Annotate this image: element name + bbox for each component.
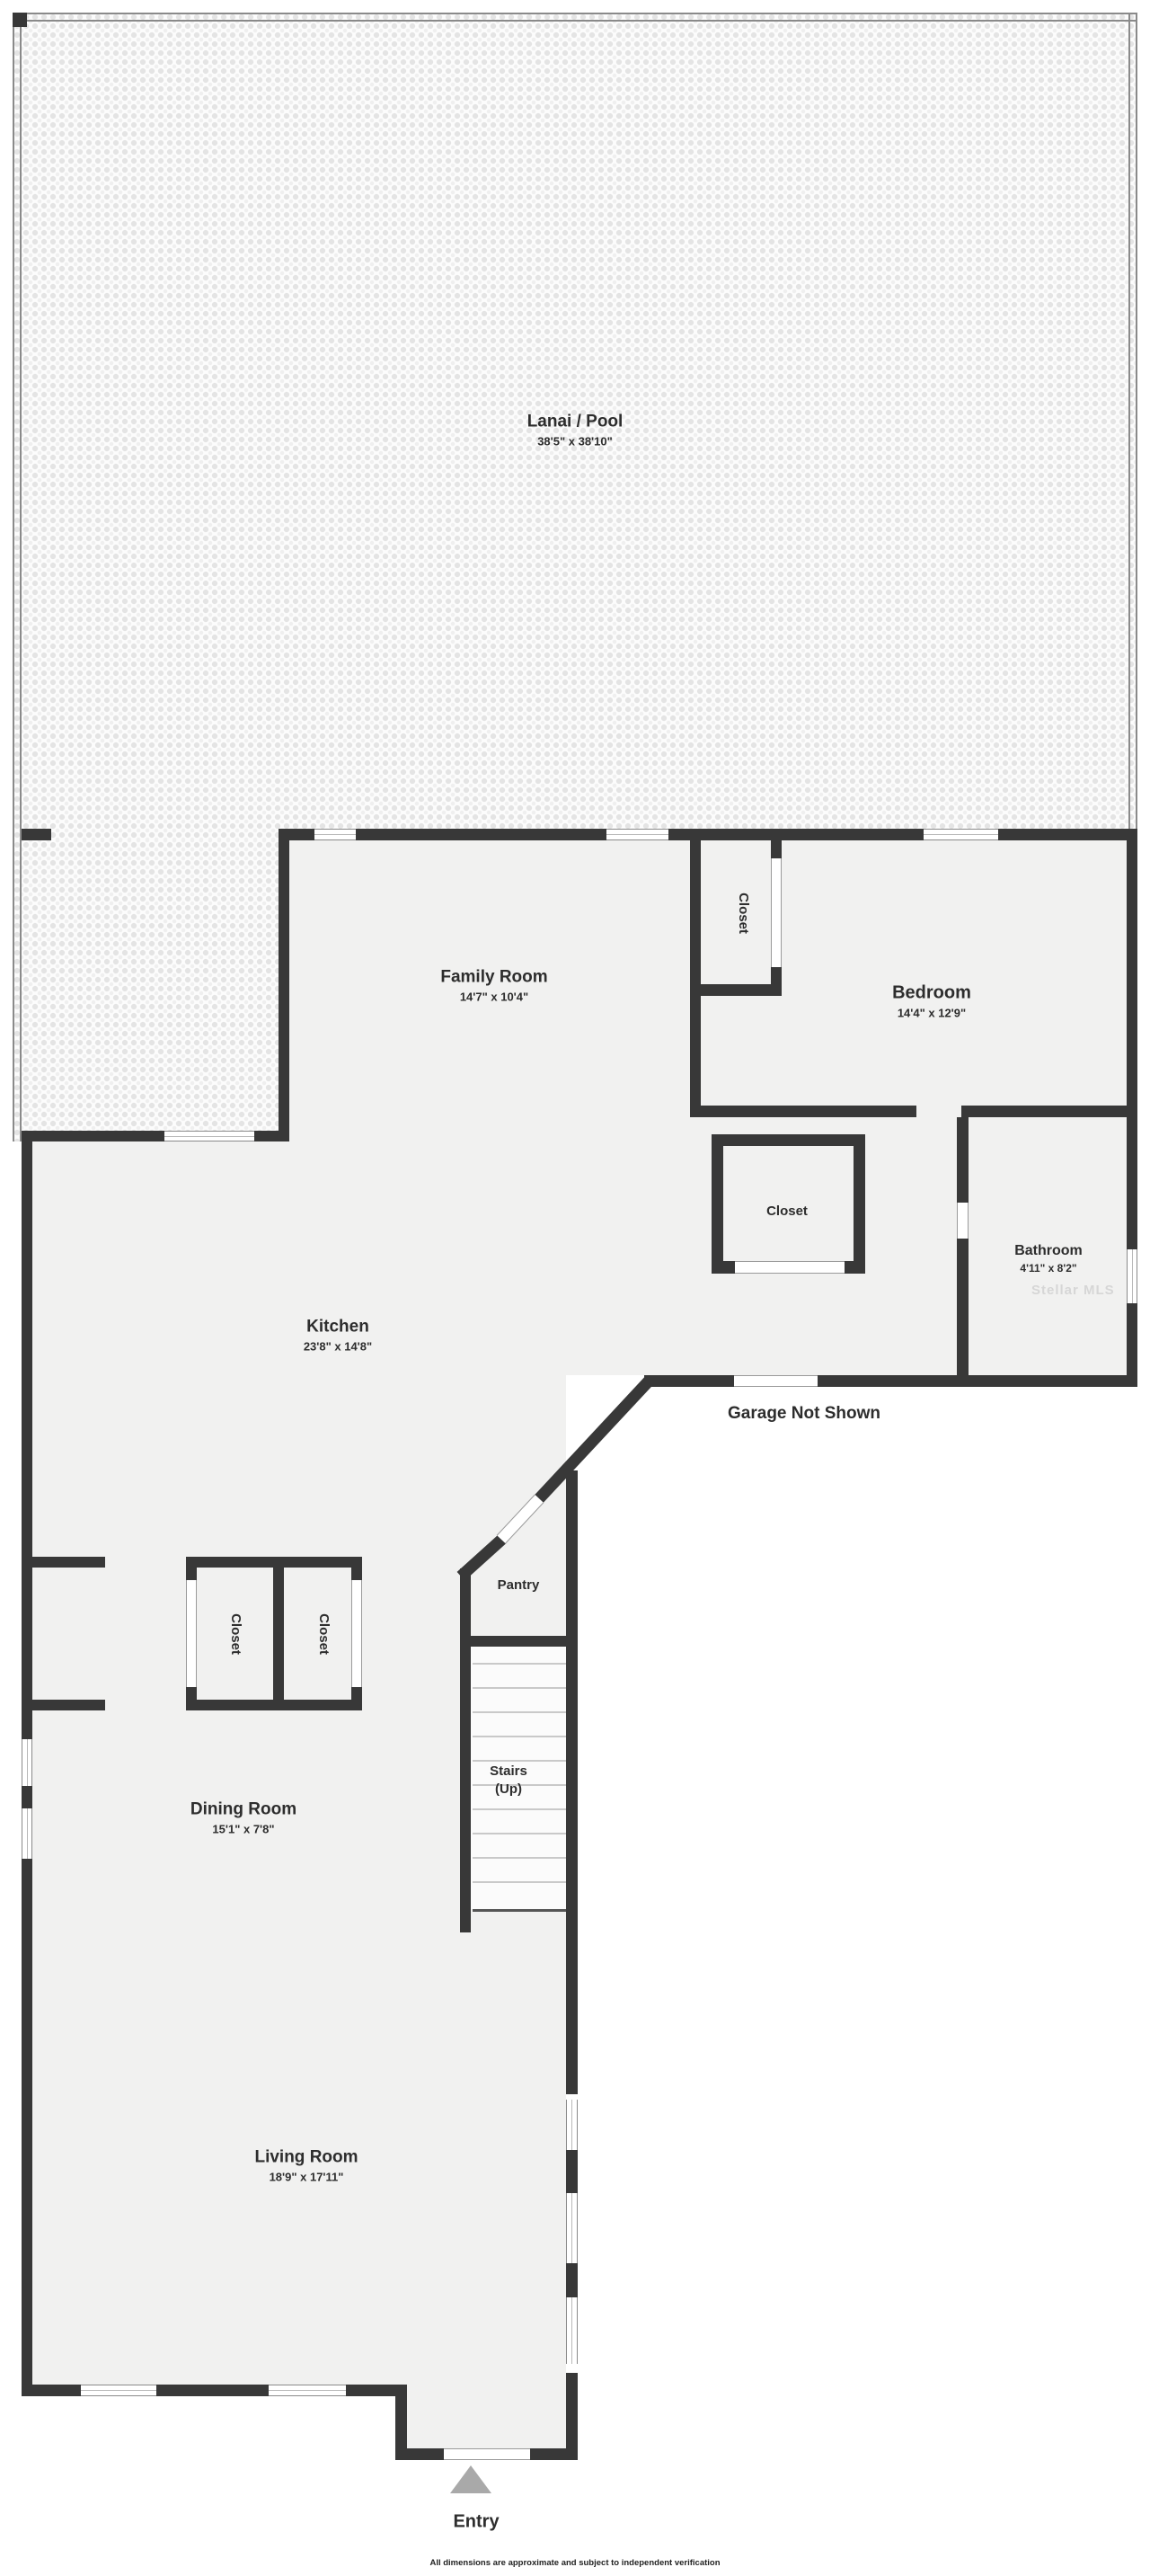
stair-step bbox=[473, 1711, 566, 1713]
stair-step bbox=[473, 1736, 566, 1737]
door-bathroom bbox=[957, 1203, 969, 1239]
wall-right-living-1 bbox=[566, 2150, 578, 2193]
watermark: Stellar MLS bbox=[1031, 1283, 1115, 1298]
entry-arrow-icon bbox=[450, 2465, 491, 2493]
window-lanai-bottom bbox=[164, 1131, 254, 1141]
wall-hall-closet-right bbox=[854, 1146, 865, 1274]
kitchen-label: Kitchen 23'8" x 14'8" bbox=[304, 1315, 372, 1354]
wall-hall-closet-left bbox=[712, 1146, 723, 1274]
stairs-name: Stairs bbox=[490, 1763, 527, 1781]
door-hall-closet bbox=[735, 1261, 845, 1274]
door-garage bbox=[734, 1375, 818, 1387]
pantry-label: Pantry bbox=[498, 1577, 540, 1594]
stair-step bbox=[473, 1833, 566, 1834]
stair-step bbox=[473, 1663, 566, 1665]
opening-bedroom bbox=[916, 1106, 961, 1117]
kitchen-dims: 23'8" x 14'8" bbox=[304, 1338, 372, 1355]
disclaimer-text: All dimensions are approximate and subje… bbox=[0, 2558, 1150, 2568]
stairs-direction: (Up) bbox=[490, 1781, 527, 1799]
window-bedroom-top bbox=[924, 829, 998, 840]
dining-closet-left-label: Closet bbox=[226, 1613, 244, 1655]
door-dining-closet-left bbox=[186, 1580, 197, 1687]
entry-name: Entry bbox=[453, 2510, 499, 2535]
living-room-dims: 18'9" x 17'11" bbox=[254, 2169, 358, 2185]
floor-plan: Lanai / Pool 38'5" x 38'10" Family Room … bbox=[0, 0, 1150, 2576]
wall-hall-closet-bottom-right bbox=[845, 1261, 865, 1274]
wall-right-living-3 bbox=[566, 2373, 578, 2460]
floor-family-kitchen-bridge bbox=[289, 1117, 566, 1141]
wall-bedroom-closet-bottom bbox=[690, 984, 782, 996]
floor-entry-alcove bbox=[400, 2385, 569, 2448]
garage-note-label: Garage Not Shown bbox=[728, 1402, 880, 1426]
stair-step-edge bbox=[473, 1909, 566, 1912]
wall-top-left-stub bbox=[22, 829, 51, 840]
living-room-label: Living Room 18'9" x 17'11" bbox=[254, 2145, 358, 2184]
window-living-right-1 bbox=[566, 2100, 578, 2150]
hall-closet-name: Closet bbox=[766, 1203, 808, 1221]
wall-bedroom-closet-right-top bbox=[771, 840, 782, 858]
wall-closet-cap-br bbox=[351, 1687, 362, 1700]
dining-closet-left-name: Closet bbox=[226, 1613, 244, 1655]
kitchen-name: Kitchen bbox=[304, 1315, 372, 1338]
wall-family-bedroom-top bbox=[279, 829, 1137, 840]
window-living-bottom-2 bbox=[269, 2385, 346, 2396]
dining-closet-right-name: Closet bbox=[314, 1613, 332, 1655]
stair-step bbox=[473, 1881, 566, 1883]
wall-closet-cap-tr bbox=[351, 1568, 362, 1580]
wall-bathroom-divider-bottom bbox=[957, 1239, 969, 1375]
lanai-corner-post bbox=[13, 13, 27, 27]
family-room-label: Family Room 14'7" x 10'4" bbox=[440, 965, 547, 1004]
window-bathroom-right bbox=[1127, 1249, 1137, 1303]
bedroom-closet-name: Closet bbox=[734, 893, 752, 934]
wall-bathroom-divider-top bbox=[957, 1117, 969, 1203]
bedroom-label: Bedroom 14'4" x 12'9" bbox=[892, 982, 971, 1022]
dining-room-dims: 15'1" x 7'8" bbox=[190, 1821, 296, 1837]
window-living-right-3 bbox=[566, 2297, 578, 2364]
bathroom-label: Bathroom 4'11" x 8'2" bbox=[1014, 1241, 1083, 1275]
bathroom-dims: 4'11" x 8'2" bbox=[1014, 1261, 1083, 1275]
bedroom-closet-label: Closet bbox=[734, 893, 752, 934]
lanai-screen-right bbox=[1128, 13, 1137, 829]
lanai-screen-top bbox=[13, 13, 1137, 22]
wall-closet-cap-tl bbox=[186, 1568, 197, 1580]
stair-step bbox=[473, 1687, 566, 1689]
wall-right-living-2 bbox=[566, 2263, 578, 2297]
wall-stairs-left bbox=[460, 1568, 471, 1932]
window-dining-left-1 bbox=[22, 1739, 32, 1786]
door-bedroom-closet bbox=[771, 858, 782, 967]
family-room-dims: 14'7" x 10'4" bbox=[440, 989, 547, 1005]
stairs-label: Stairs (Up) bbox=[490, 1763, 527, 1799]
hall-closet-label: Closet bbox=[766, 1203, 808, 1221]
family-room-name: Family Room bbox=[440, 965, 547, 989]
wall-family-left bbox=[279, 840, 289, 1141]
window-dining-left-2 bbox=[22, 1808, 32, 1859]
lanai-screen-left bbox=[13, 13, 22, 1141]
stair-step bbox=[473, 1857, 566, 1859]
wall-hall-closet-top bbox=[712, 1134, 865, 1146]
window-living-bottom-1 bbox=[81, 2385, 156, 2396]
window-living-right-2 bbox=[566, 2193, 578, 2263]
window-family-top-1 bbox=[314, 829, 356, 840]
entry-label: Entry bbox=[453, 2510, 499, 2535]
pantry-name: Pantry bbox=[498, 1577, 540, 1594]
garage-note-text: Garage Not Shown bbox=[728, 1402, 880, 1426]
wall-pantry-bottom bbox=[460, 1636, 573, 1647]
door-front-entry bbox=[444, 2448, 530, 2460]
wall-entry-bottom-left bbox=[395, 2448, 444, 2460]
door-dining-closet-right bbox=[351, 1580, 362, 1687]
lanai-label: Lanai / Pool 38'5" x 38'10" bbox=[527, 410, 624, 449]
wall-family-bedroom-divider bbox=[690, 840, 701, 1117]
lanai-dims: 38'5" x 38'10" bbox=[527, 433, 624, 449]
floor-family-bedroom bbox=[289, 840, 1127, 1117]
wall-garage-left bbox=[644, 1375, 734, 1387]
lanai-name: Lanai / Pool bbox=[527, 410, 624, 433]
bedroom-name: Bedroom bbox=[892, 982, 971, 1006]
wall-closet-stub-bottom bbox=[32, 1700, 105, 1710]
dining-room-name: Dining Room bbox=[190, 1798, 296, 1821]
wall-closet-stub-top bbox=[32, 1557, 105, 1568]
bathroom-name: Bathroom bbox=[1014, 1241, 1083, 1261]
wall-dining-closets-middle bbox=[273, 1568, 284, 1700]
wall-stairs-right bbox=[566, 1470, 578, 2094]
wall-bedroom-bottom-right bbox=[961, 1106, 1137, 1117]
window-family-top-2 bbox=[606, 829, 668, 840]
stair-step bbox=[473, 1808, 566, 1810]
wall-closet-cap-bl bbox=[186, 1687, 197, 1700]
bedroom-dims: 14'4" x 12'9" bbox=[892, 1006, 971, 1022]
wall-dining-closets-bottom bbox=[186, 1700, 362, 1710]
wall-dining-closets-top bbox=[186, 1557, 362, 1568]
dining-closet-right-label: Closet bbox=[314, 1613, 332, 1655]
stair-step bbox=[473, 1760, 566, 1762]
wall-bedroom-bottom-left bbox=[701, 1106, 916, 1117]
wall-garage-right bbox=[818, 1375, 1137, 1387]
living-room-name: Living Room bbox=[254, 2145, 358, 2169]
wall-hall-closet-bottom-left bbox=[712, 1261, 735, 1274]
lanai-floor-left-strip bbox=[13, 840, 279, 1141]
dining-room-label: Dining Room 15'1" x 7'8" bbox=[190, 1798, 296, 1836]
